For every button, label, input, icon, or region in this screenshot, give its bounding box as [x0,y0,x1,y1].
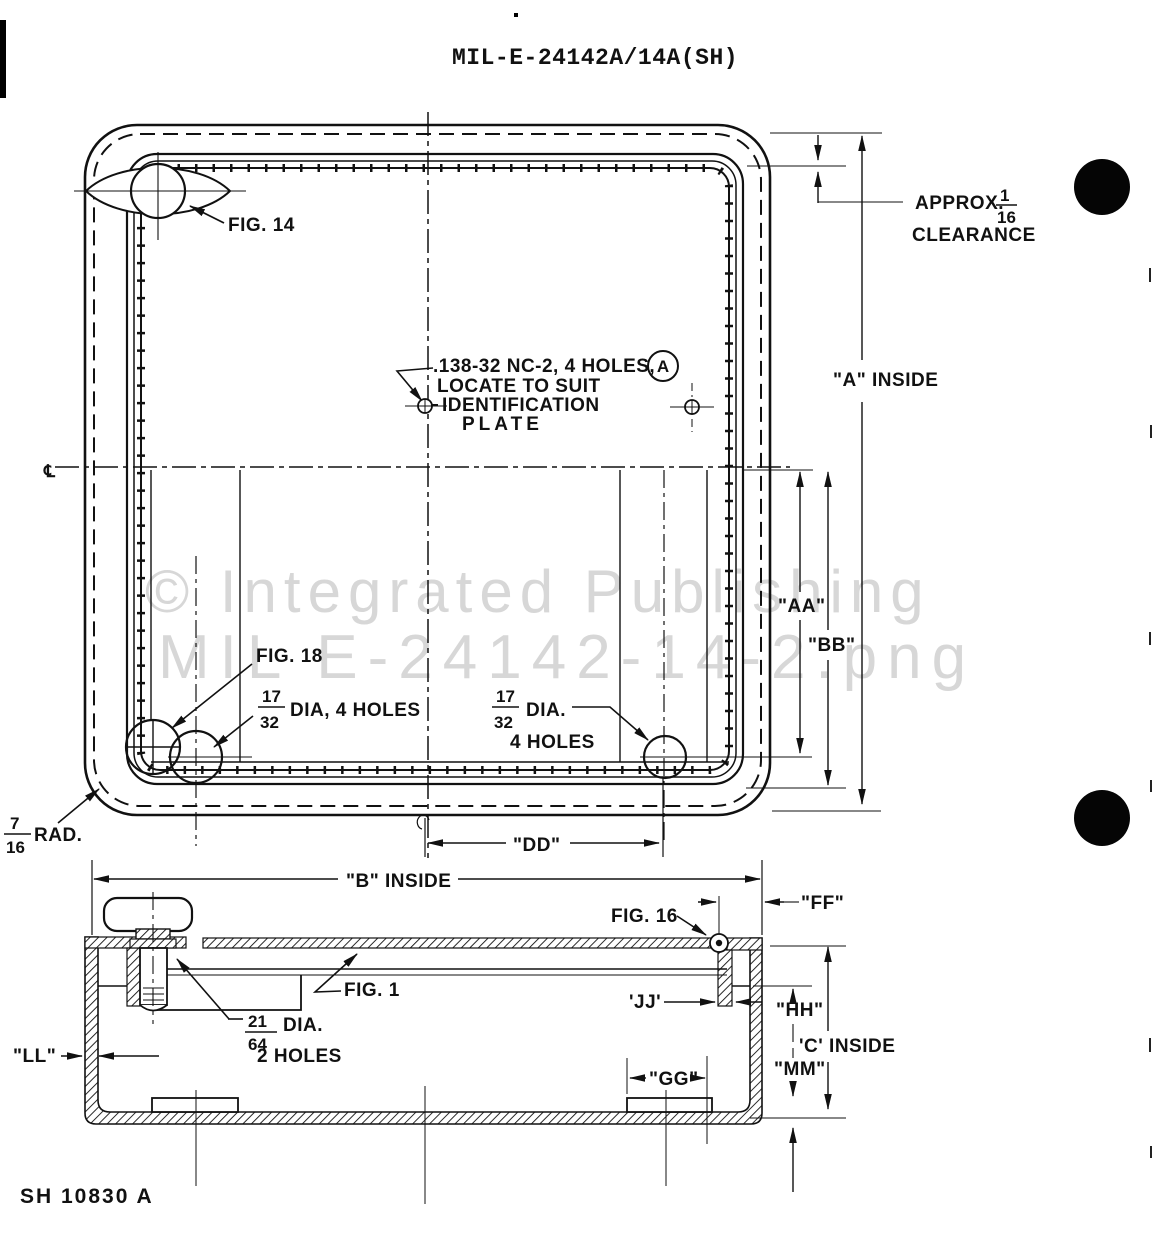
hole-left-num: 17 [262,687,281,706]
latch-keeper-box [151,975,301,1010]
watermark: © Integrated Publishing MIL E-24142-14-2… [145,558,976,692]
dim-gg-label: "GG" [649,1069,699,1090]
coaming-walls [85,937,762,1124]
bottom-pad-left [152,1098,238,1112]
dim-bb-label: "BB" [808,635,855,656]
hole-right-num: 17 [496,687,515,706]
page-title: MIL-E-24142A/14A(SH) [452,45,738,71]
dd-dimension: "DD" [417,815,659,857]
punch-hole-bottom [1074,790,1130,846]
right-top-flange [727,938,762,950]
bottom-pad-right [627,1098,712,1112]
fig1-label: FIG. 1 [344,980,400,1001]
clearance-prefix: APPROX. [915,193,1004,214]
plan-right-dimensions: APPROX. 1 16 CLEARANCE "A" INSIDE "AA" "… [682,133,1036,811]
punch-hole-top [1074,159,1130,215]
panel-section-fig1 [203,938,712,948]
hole-left-den: 32 [260,713,279,732]
rad-num: 7 [10,814,19,833]
hole-left-suffix: DIA, 4 HOLES [290,700,421,721]
dim-hh-label: "HH" [776,1000,823,1021]
bolt-hole-num: 21 [248,1012,267,1031]
hole-right-count: 4 HOLES [510,732,595,753]
note-line1: .138-32 NC-2, 4 HOLES, [433,356,655,377]
hinge-pin-center [716,940,722,946]
bottom-right-hole: 17 32 DIA. 4 HOLES [492,687,700,778]
dim-ff-label: "FF" [801,893,844,914]
rad-den: 16 [6,838,25,857]
plan-centerlines: ℄ [43,112,790,858]
fig16-label: FIG. 16 [611,906,678,927]
bolt-hole-dia: DIA. [283,1015,323,1036]
fig18-label: FIG. 18 [256,646,323,667]
clearance-word: CLEARANCE [912,225,1036,246]
dim-a-label: "A" INSIDE [833,370,938,391]
note-block: .138-32 NC-2, 4 HOLES, A LOCATE TO SUIT … [397,351,714,435]
latch-knob [104,898,192,931]
sheet-number: SH 10830 A [20,1185,154,1208]
drawing-canvas: © Integrated Publishing MIL E-24142-14-2… [0,0,1157,1234]
callout-a: A [657,357,669,376]
clearance-num: 1 [1000,186,1009,205]
dim-mm-label: "MM" [774,1059,826,1080]
dim-dd-label: "DD" [513,835,560,856]
note-line2: LOCATE TO SUIT [437,376,601,397]
dim-b-label: "B" INSIDE [346,871,451,892]
fig14-label: FIG. 14 [228,215,295,236]
dim-jj-label: 'JJ' [629,992,661,1013]
note-line4: PLATE [462,414,543,435]
dim-ll-label: "LL" [13,1046,56,1067]
dim-aa-label: "AA" [778,596,825,617]
hole-right-dia: DIA. [526,700,566,721]
engineering-drawing-page: © Integrated Publishing MIL E-24142-14-2… [0,0,1157,1234]
punch-holes [1074,159,1130,846]
note-line3: IDENTIFICATION [442,395,600,416]
section-structure [85,892,762,1204]
latch-fig14: FIG. 14 [74,152,295,240]
dim-c-label: 'C' INSIDE [799,1036,895,1057]
right-inner-flange [718,950,732,1006]
bolt-hole-count: 2 HOLES [257,1046,342,1067]
rad-suffix: RAD. [34,825,82,846]
hole-right-den: 32 [494,713,513,732]
centerline-symbol: ℄ [43,462,56,481]
